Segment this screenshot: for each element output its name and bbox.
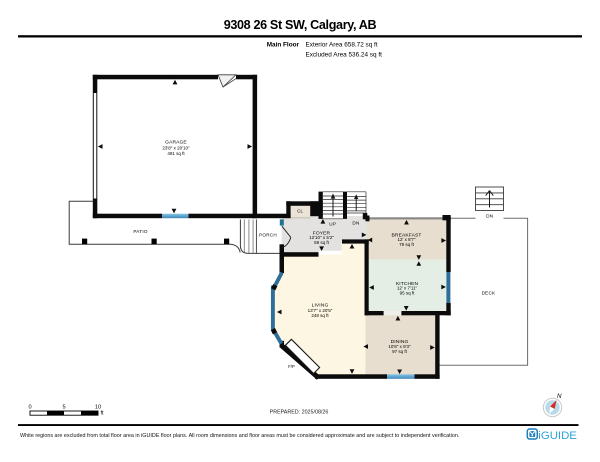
- svg-text:79 sq ft: 79 sq ft: [399, 242, 415, 247]
- svg-text:DN: DN: [486, 214, 493, 219]
- svg-text:White regions are excluded fro: White regions are excluded from total fl…: [20, 433, 460, 439]
- svg-text:DN: DN: [352, 220, 359, 225]
- svg-text:97 sq ft: 97 sq ft: [392, 349, 408, 354]
- svg-text:PORCH: PORCH: [259, 233, 277, 238]
- svg-text:UP: UP: [329, 221, 336, 226]
- svg-text:95 sq ft: 95 sq ft: [400, 291, 416, 296]
- svg-text:DECK: DECK: [482, 290, 496, 295]
- svg-text:59 sq ft: 59 sq ft: [314, 240, 330, 245]
- svg-text:ft: ft: [101, 411, 105, 417]
- svg-text:23'8" x 20'10": 23'8" x 20'10": [162, 146, 190, 151]
- svg-text:0: 0: [28, 405, 31, 411]
- svg-text:iGUIDE: iGUIDE: [538, 430, 577, 442]
- svg-text:5: 5: [62, 405, 65, 411]
- svg-text:PREPARED: 2025/08/26: PREPARED: 2025/08/26: [270, 410, 329, 416]
- svg-text:PATIO: PATIO: [133, 229, 148, 234]
- svg-text:9308 26 St SW, Calgary, AB: 9308 26 St SW, Calgary, AB: [224, 18, 377, 32]
- svg-text:Main Floor: Main Floor: [267, 42, 300, 49]
- svg-text:248 sq ft: 248 sq ft: [311, 313, 329, 318]
- svg-text:Excluded Area 536.24 sq ft: Excluded Area 536.24 sq ft: [306, 52, 383, 59]
- svg-text:491 sq ft: 491 sq ft: [167, 151, 185, 156]
- svg-text:F/P: F/P: [288, 364, 295, 369]
- svg-text:N: N: [557, 393, 562, 400]
- svg-text:CL: CL: [297, 209, 303, 214]
- svg-text:Exterior Area 658.72 sq ft: Exterior Area 658.72 sq ft: [306, 42, 378, 49]
